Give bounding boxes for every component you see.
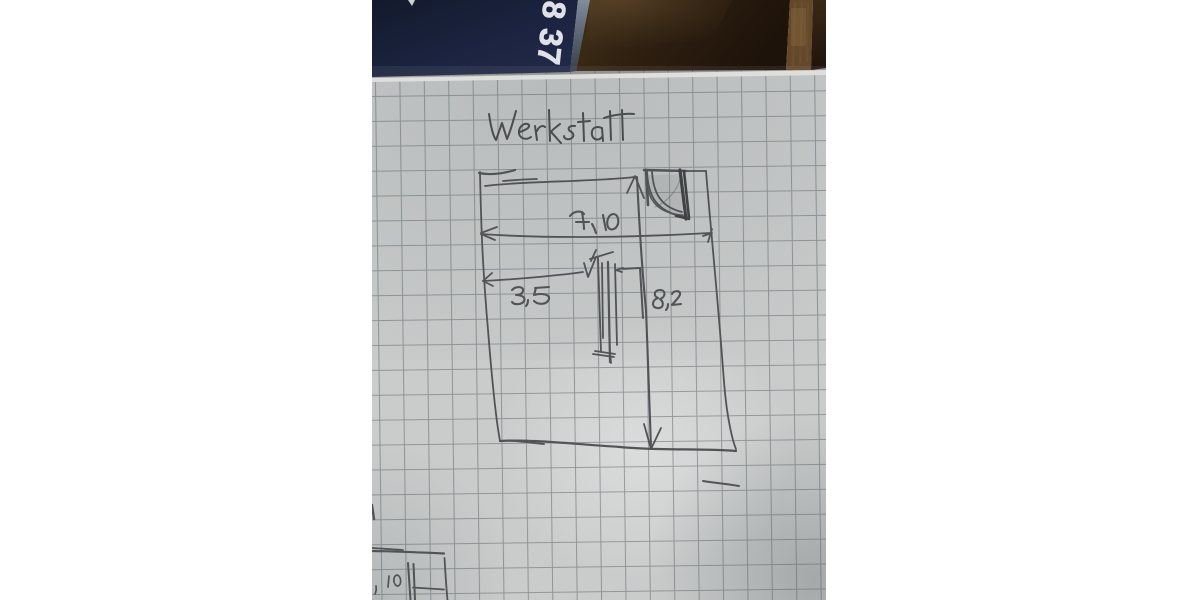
svg-text:8 37: 8 37	[530, 0, 573, 67]
